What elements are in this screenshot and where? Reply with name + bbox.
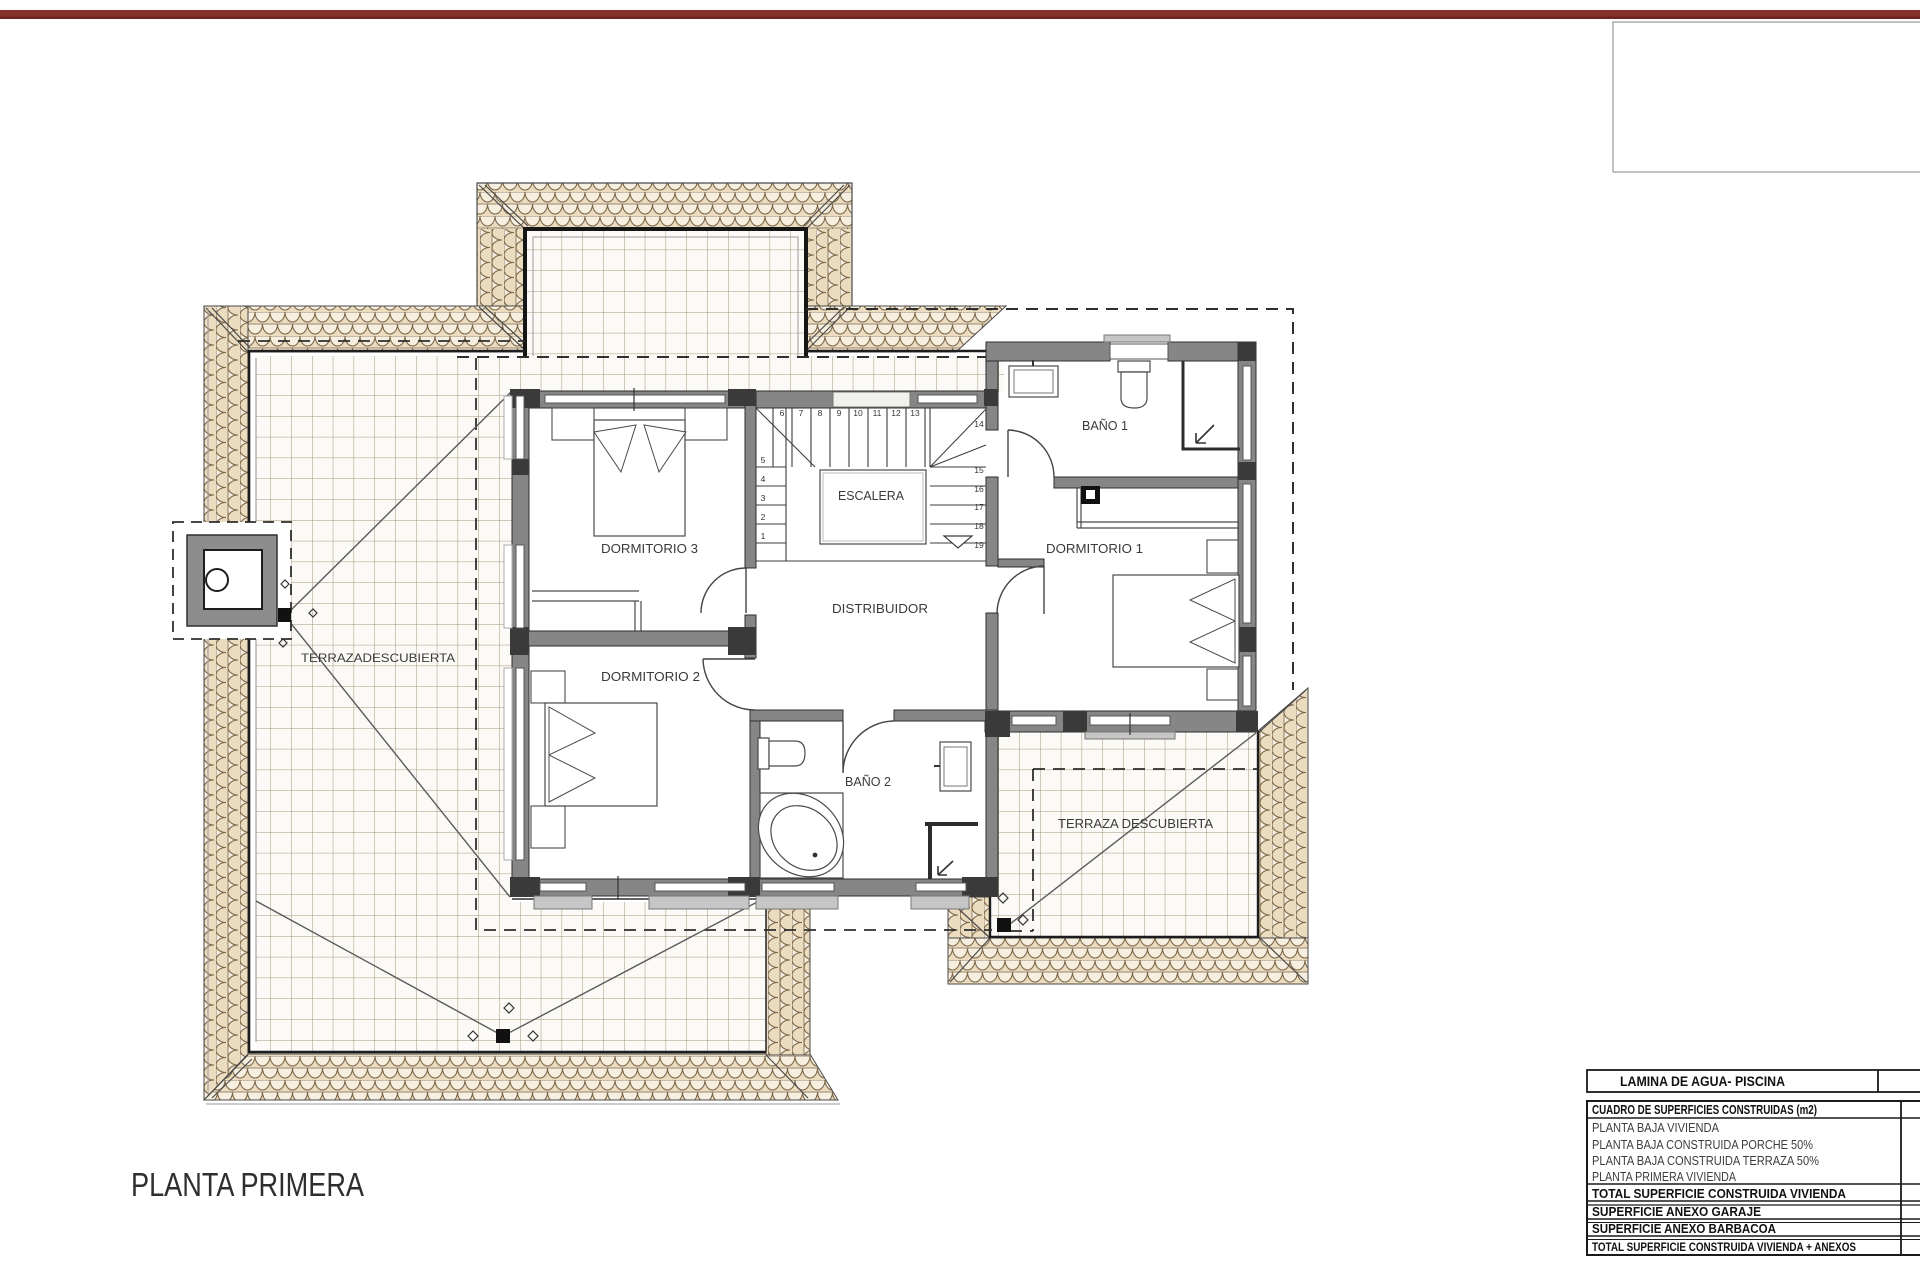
svg-text:SUPERFICIE ANEXO GARAJE: SUPERFICIE ANEXO GARAJE	[1592, 1204, 1761, 1219]
svg-text:19: 19	[974, 540, 984, 550]
svg-text:5: 5	[761, 455, 766, 465]
svg-text:4: 4	[761, 474, 766, 484]
svg-text:BAÑO 1: BAÑO 1	[1082, 419, 1128, 433]
svg-text:PLANTA BAJA VIVIENDA: PLANTA BAJA VIVIENDA	[1592, 1121, 1720, 1135]
svg-text:PLANTA PRIMERA: PLANTA PRIMERA	[131, 1166, 364, 1203]
svg-text:2: 2	[761, 512, 766, 522]
svg-text:PLANTA PRIMERA VIVIENDA: PLANTA PRIMERA VIVIENDA	[1592, 1170, 1737, 1184]
svg-text:SUPERFICIE ANEXO BARBACOA: SUPERFICIE ANEXO BARBACOA	[1592, 1221, 1777, 1236]
svg-text:TOTAL SUPERFICIE CONSTRUIDA VI: TOTAL SUPERFICIE CONSTRUIDA VIVIENDA + A…	[1592, 1240, 1856, 1254]
svg-text:DORMITORIO 1: DORMITORIO 1	[1046, 541, 1143, 556]
svg-text:18: 18	[974, 521, 984, 531]
svg-text:TERRAZA DESCUBIERTA: TERRAZA DESCUBIERTA	[1058, 817, 1214, 831]
svg-text:3: 3	[761, 493, 766, 503]
svg-text:PLANTA BAJA CONSTRUIDA TERRAZA: PLANTA BAJA CONSTRUIDA TERRAZA 50%	[1592, 1154, 1819, 1168]
svg-text:15: 15	[974, 465, 984, 475]
svg-text:16: 16	[974, 484, 984, 494]
svg-text:LAMINA DE AGUA- PISCINA: LAMINA DE AGUA- PISCINA	[1620, 1074, 1785, 1089]
svg-text:TOTAL SUPERFICIE CONSTRUIDA VI: TOTAL SUPERFICIE CONSTRUIDA VIVIENDA	[1592, 1186, 1847, 1201]
svg-text:TERRAZADESCUBIERTA: TERRAZADESCUBIERTA	[301, 651, 455, 665]
svg-text:PLANTA BAJA CONSTRUIDA PORCHE: PLANTA BAJA CONSTRUIDA PORCHE 50%	[1592, 1138, 1813, 1152]
svg-text:ESCALERA: ESCALERA	[838, 489, 905, 503]
svg-text:9: 9	[837, 408, 842, 418]
svg-text:14: 14	[974, 419, 984, 429]
svg-text:12: 12	[891, 408, 901, 418]
svg-text:10: 10	[853, 408, 863, 418]
svg-text:17: 17	[974, 502, 984, 512]
svg-text:13: 13	[910, 408, 920, 418]
svg-text:DISTRIBUIDOR: DISTRIBUIDOR	[832, 602, 928, 616]
svg-text:8: 8	[818, 408, 823, 418]
svg-text:6: 6	[780, 408, 785, 418]
svg-text:11: 11	[873, 408, 882, 418]
svg-text:DORMITORIO 2: DORMITORIO 2	[601, 669, 700, 684]
svg-text:7: 7	[799, 408, 804, 418]
svg-text:CUADRO DE SUPERFICIES CONSTRUI: CUADRO DE SUPERFICIES CONSTRUIDAS (m2)	[1592, 1102, 1817, 1117]
svg-text:DORMITORIO 3: DORMITORIO 3	[601, 541, 698, 556]
svg-text:1: 1	[761, 531, 766, 541]
svg-text:BAÑO 2: BAÑO 2	[845, 775, 891, 789]
